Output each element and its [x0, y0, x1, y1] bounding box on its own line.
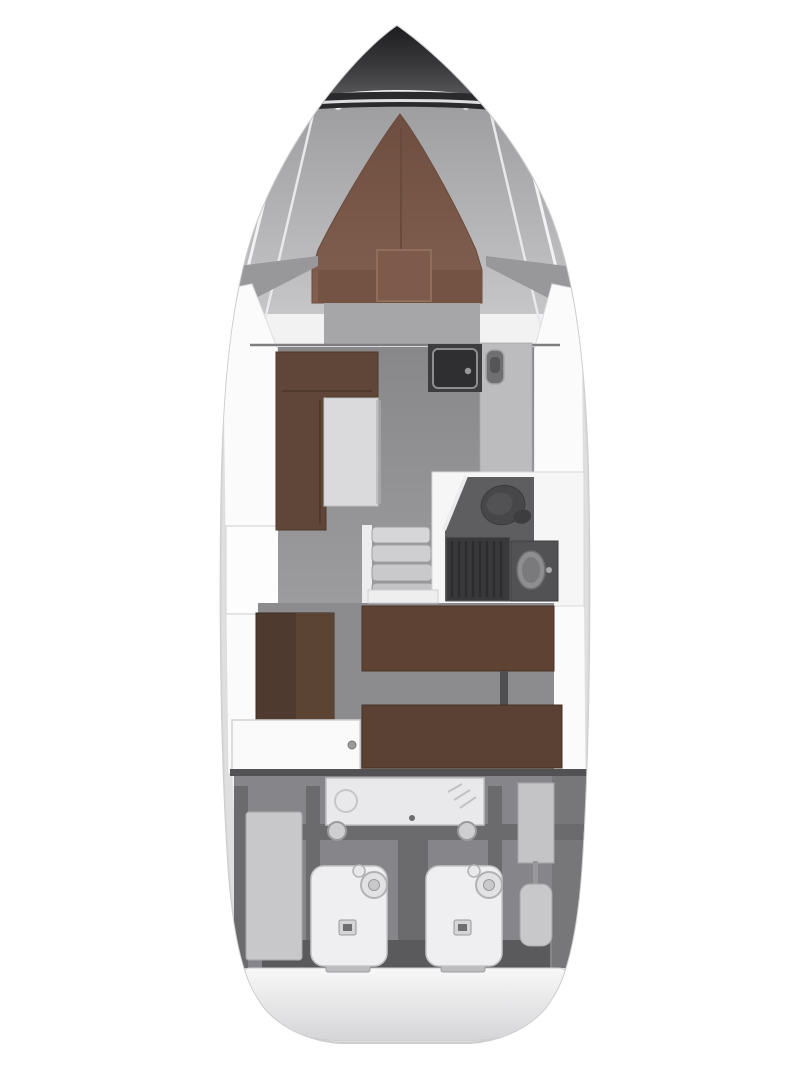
stair-tread — [372, 545, 431, 562]
galley-faucet — [465, 368, 471, 374]
aft-berth-lower — [362, 705, 562, 768]
wardrobe-door — [296, 613, 334, 720]
aft-berth-nightstand — [500, 671, 508, 705]
engine-mount-left — [328, 822, 346, 840]
tank-connector — [533, 861, 538, 886]
vanity-sink-bowl — [522, 557, 540, 583]
bathroom — [432, 472, 584, 606]
stern-wall — [262, 940, 550, 970]
vanity-faucet — [546, 567, 552, 573]
engine-right — [426, 865, 502, 972]
yacht-floorplan — [0, 0, 810, 1080]
engine-left — [311, 865, 387, 972]
swim-platform — [241, 968, 569, 1041]
engine-pulley-hub — [369, 880, 380, 891]
aft-cabin — [232, 590, 562, 773]
stair-tread — [372, 527, 430, 543]
tank-right-lower — [520, 884, 552, 946]
engine-cap — [468, 865, 480, 877]
stair-tread — [372, 564, 432, 581]
aft-berth-upper — [362, 606, 554, 671]
engine-vent-slot — [343, 924, 352, 931]
engine-cap — [353, 865, 365, 877]
aft-cabin-door-top — [368, 590, 438, 603]
yacht-floorplan-page — [0, 0, 810, 1080]
anchor-locker — [294, 26, 500, 99]
cabin-door — [232, 720, 360, 770]
galley-sink — [433, 349, 477, 388]
salon-table — [324, 398, 378, 506]
engine-pulley-hub — [484, 880, 495, 891]
galley-fixture-inner — [490, 357, 500, 373]
salon-table-shadow — [376, 400, 381, 504]
generator-detail-dot — [409, 815, 415, 821]
bulkhead-aft — [230, 769, 588, 776]
forward-cabin-floor — [324, 303, 480, 345]
fuel-tank-left — [246, 812, 302, 960]
v-berth-step — [377, 250, 431, 301]
tank-right-upper — [518, 783, 554, 863]
engine-mount-right — [458, 822, 476, 840]
engine-room — [230, 769, 588, 970]
engine-vent-slot — [458, 924, 467, 931]
door-handle — [348, 741, 356, 749]
